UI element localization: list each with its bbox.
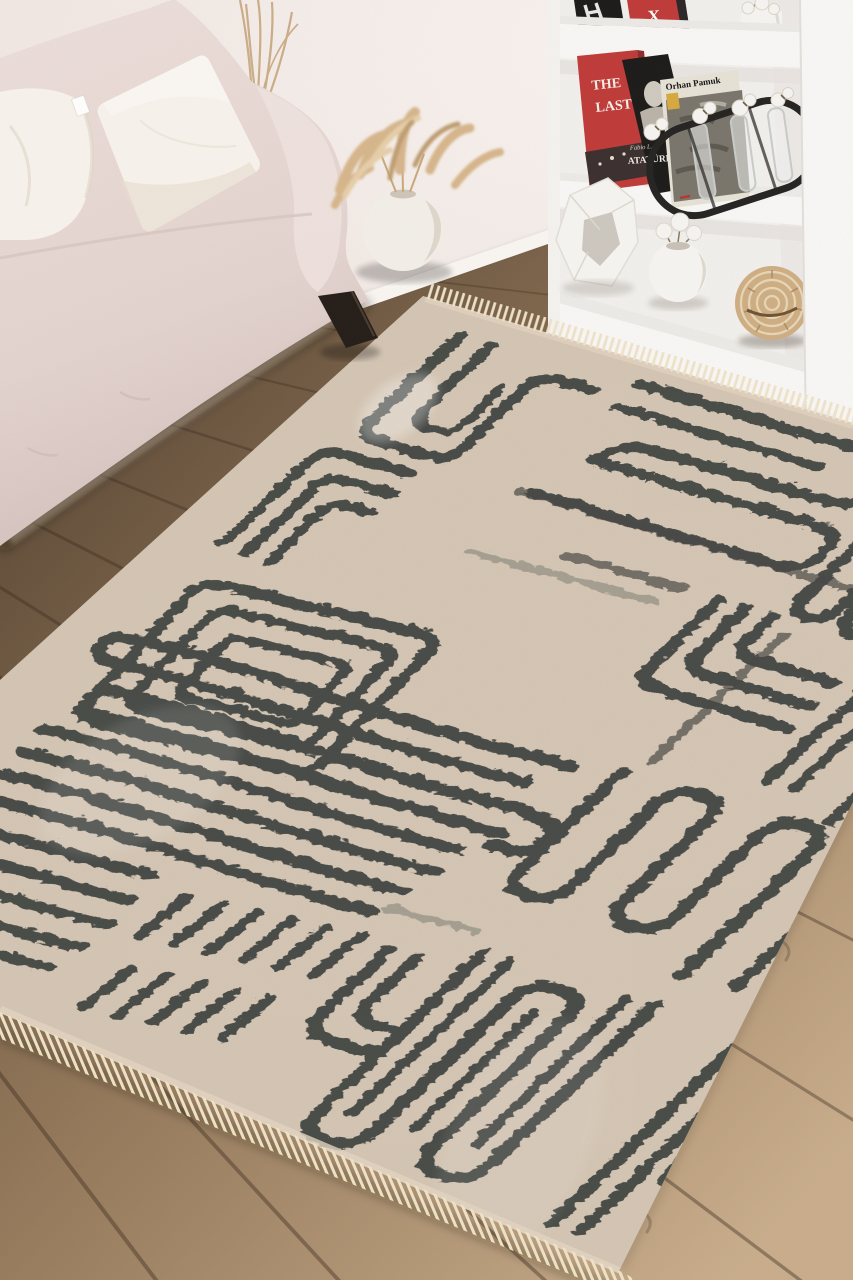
scene-canvas: X (0, 0, 853, 1280)
living-room-photo: X (0, 0, 853, 1280)
photo-grain-overlay (0, 0, 853, 1280)
